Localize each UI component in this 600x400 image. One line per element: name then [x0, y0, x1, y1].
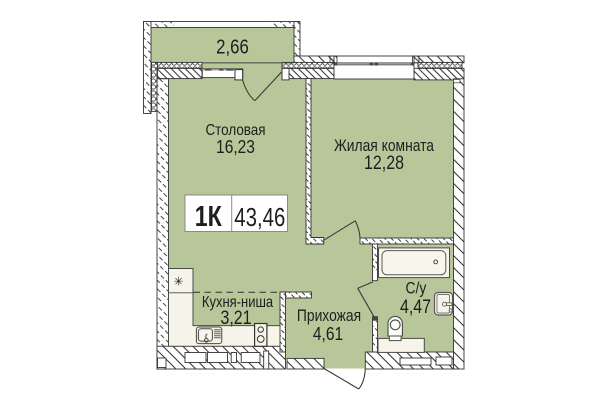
svg-text:3,21: 3,21 — [220, 307, 251, 329]
svg-text:4,47: 4,47 — [400, 296, 431, 318]
svg-text:4,61: 4,61 — [313, 324, 343, 345]
svg-text:1К: 1К — [195, 199, 223, 232]
svg-text:2,66: 2,66 — [216, 35, 249, 58]
svg-text:✳: ✳ — [173, 275, 183, 289]
svg-text:Прихожая: Прихожая — [297, 307, 361, 325]
svg-text:12,28: 12,28 — [364, 151, 404, 173]
svg-text:16,23: 16,23 — [216, 137, 255, 158]
svg-text:43,46: 43,46 — [234, 203, 285, 232]
